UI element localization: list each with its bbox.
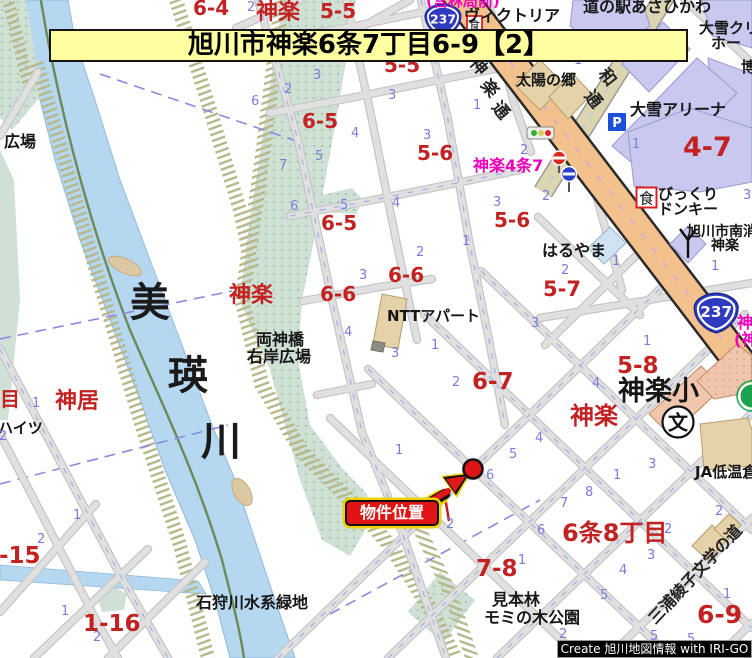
- restaurant-icon: 食: [637, 188, 657, 208]
- property-marker-dot: [464, 460, 483, 479]
- bus-stop-icon: [562, 167, 577, 193]
- address-banner: 旭川市神楽6条7丁目6-9【2】: [49, 29, 688, 62]
- parking-icon-letter: P: [612, 116, 622, 131]
- address-banner-title: 旭川市神楽6条7丁目6-9【2】: [188, 30, 549, 60]
- ntt-apartment-building: [373, 294, 407, 349]
- credit-bar: Create 旭川地図情報 with IRI-GO: [557, 640, 752, 658]
- route-shield-number: 237: [430, 12, 456, 27]
- traffic-light-icon: [527, 127, 554, 139]
- property-marker-label-text: 物件位置: [360, 503, 424, 522]
- school-icon: 文: [663, 407, 694, 438]
- restaurant-icon-glyph: 食: [639, 190, 654, 208]
- route-shield-number: 237: [700, 303, 732, 321]
- school-icon-glyph: 文: [668, 411, 689, 435]
- property-marker-label: 物件位置: [345, 500, 439, 526]
- ja-warehouse-building: [700, 418, 752, 470]
- map-canvas: P 食 食 文 237 237: [0, 0, 752, 658]
- credit-bar-text: Create 旭川地図情報 with IRI-GO: [561, 642, 749, 656]
- parking-icon: P: [608, 113, 626, 131]
- map-stage: P 食 食 文 237 237 6-4神楽5-55-56-55-65-6: [0, 0, 752, 658]
